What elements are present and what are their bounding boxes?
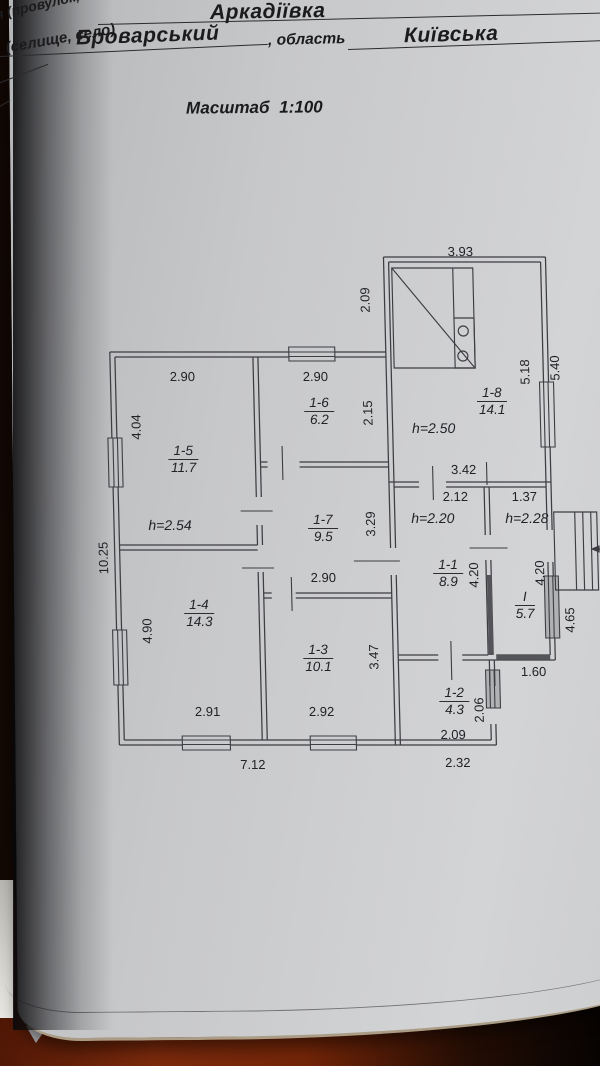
height-labels: h=2.54 h=2.50 h=2.20 h=2.28: [146, 420, 549, 533]
window-symbol: [540, 382, 556, 447]
room-number-label: 1-8: [482, 385, 502, 400]
stove-circle: [458, 351, 468, 361]
window-symbol: [113, 630, 128, 685]
scale-label: Масштаб 1:100: [186, 97, 323, 118]
room-area-label: 14.3: [186, 614, 213, 629]
dimension-label: 4.20: [532, 560, 548, 585]
stray-form-mark: [0, 100, 10, 109]
room-number-label: 1-4: [189, 597, 209, 612]
dimension-label: 4.90: [139, 618, 155, 643]
photo-of-document: я (провулок, (селище, село) Аркадіївка Б…: [0, 0, 600, 1066]
room-area-label: 5.7: [516, 606, 536, 621]
entry-steps: [554, 512, 600, 590]
steps-treads: [575, 512, 593, 590]
room-number-label: 1-3: [308, 642, 328, 657]
page-content: я (провулок, (селище, село) Аркадіївка Б…: [0, 0, 600, 1066]
room-number-label: 1-2: [444, 685, 464, 700]
stove-symbol: [392, 268, 475, 368]
floor-plan: 3.93 2.09 2.90 2.90 2.15 4.04 5.18 5.40 …: [80, 238, 600, 786]
dimension-label: 5.18: [517, 359, 533, 384]
dimension-label: 2.90: [170, 369, 196, 384]
room-area-label: 11.7: [171, 460, 197, 475]
room-number-label: 1-7: [313, 512, 333, 527]
dimension-label: 2.09: [357, 287, 373, 312]
room-label-fraction-bars: [167, 402, 537, 702]
window-symbol: [486, 670, 501, 708]
dimension-label: 4.04: [128, 414, 144, 439]
stray-form-line: [0, 64, 48, 87]
dimension-label: 2.91: [195, 704, 221, 719]
stove-circle: [458, 326, 468, 336]
room-number-label: 1-1: [438, 557, 458, 572]
room-number-label: I: [523, 589, 527, 604]
fraction-bars: [167, 402, 537, 702]
dimension-label: 5.40: [547, 355, 563, 380]
dimension-label: 2.90: [310, 570, 336, 585]
window-symbol: [182, 736, 230, 750]
dimension-label: 2.32: [445, 755, 471, 770]
room-area-label: 4.3: [445, 702, 465, 717]
dimension-label: 2.92: [309, 704, 335, 719]
ceiling-height-label: h=2.54: [148, 517, 192, 533]
dimension-label: 3.93: [447, 244, 473, 259]
dimension-label: 3.42: [451, 462, 477, 477]
form-label-oblast: , область: [268, 30, 346, 50]
window-symbol: [310, 736, 356, 750]
room-area-label: 9.5: [314, 529, 334, 544]
dimension-label: 1.37: [511, 489, 537, 504]
window-symbol: [108, 438, 123, 487]
dimension-label: 1.60: [521, 664, 547, 679]
room-area-label: 10.1: [305, 659, 332, 674]
room-area-label: 8.9: [439, 574, 459, 589]
window-symbol: [289, 347, 335, 361]
dimension-label: 10.25: [95, 542, 111, 575]
room-number-label: 1-6: [309, 395, 329, 410]
settlement-value: Аркадіївка: [210, 0, 326, 25]
room-area-label: 6.2: [310, 412, 330, 427]
ceiling-height-label: h=2.20: [411, 510, 455, 526]
room-area-label: 14.1: [479, 402, 506, 417]
dimension-label: 2.90: [303, 369, 329, 384]
form-label-street-partial: я (провулок,: [0, 0, 81, 22]
dimension-label: 3.29: [363, 511, 379, 536]
shaded-wall-segment: [496, 656, 550, 660]
dimension-label: 4.65: [562, 607, 578, 632]
dimension-label: 4.20: [466, 562, 482, 587]
dimension-label: 2.09: [440, 727, 466, 742]
dimension-label: 2.12: [442, 489, 468, 504]
room-number-label: 1-5: [173, 443, 193, 458]
ceiling-height-label: h=2.28: [505, 510, 549, 526]
room-labels: 1-5 11.7 1-6 6.2 1-7 9.5 1-4 14.3 1-3 10…: [169, 385, 538, 717]
dimension-label: 2.15: [360, 400, 376, 425]
oblast-value: Київська: [404, 22, 499, 48]
ceiling-height-label: h=2.50: [412, 420, 456, 436]
dimension-label: 2.06: [471, 697, 487, 722]
dimension-label: 7.12: [240, 757, 266, 772]
dimension-label: 3.47: [366, 644, 382, 669]
dimension-labels: 3.93 2.09 2.90 2.90 2.15 4.04 5.18 5.40 …: [88, 244, 581, 772]
